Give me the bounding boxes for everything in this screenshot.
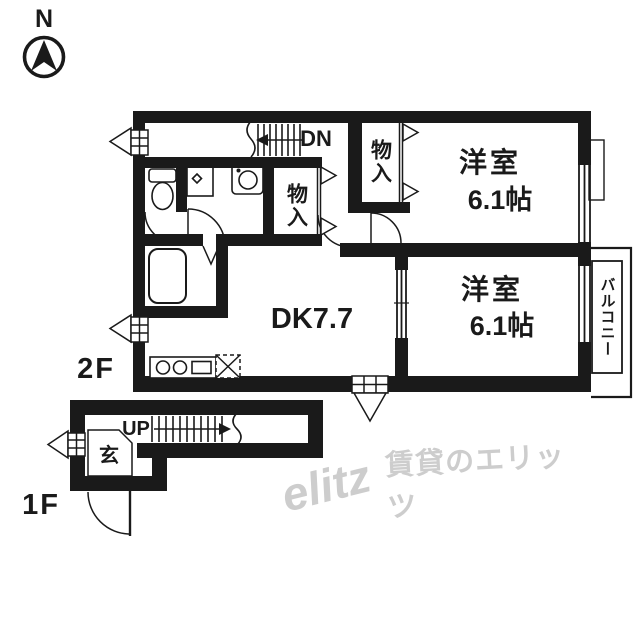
vent-icon xyxy=(352,376,388,421)
floor-plan: N DN UP 洋室 6.1帖 洋室 6.1帖 DK7.7 物入 物入 バルコニ… xyxy=(0,0,640,640)
compass-icon xyxy=(25,38,64,77)
washbasin-icon xyxy=(232,164,263,194)
stairs-up-icon xyxy=(152,413,241,445)
vent-icon xyxy=(110,128,148,155)
stairs-down-label: DN xyxy=(299,125,333,153)
entrance-label: 玄 xyxy=(98,444,120,468)
washer-pan-icon xyxy=(187,167,213,196)
bathtub-icon xyxy=(149,249,186,303)
floor-1f-label: 1F xyxy=(17,489,65,521)
stairs-down-icon xyxy=(247,121,302,157)
vent-icon xyxy=(48,431,85,458)
balcony-label: バルコニー xyxy=(596,264,618,370)
vent-icon xyxy=(110,315,148,342)
room2-size: 6.1帖 xyxy=(437,310,567,342)
toilet-icon xyxy=(149,169,176,210)
compass-north-label: N xyxy=(33,5,55,33)
closet2-label: 物入 xyxy=(367,128,393,196)
room1-size: 6.1帖 xyxy=(435,184,565,216)
room2-name: 洋室 xyxy=(432,274,552,306)
window-icon xyxy=(578,266,591,342)
window-icon xyxy=(394,270,409,338)
refrigerator-space-icon xyxy=(216,355,240,378)
window-icon xyxy=(578,140,604,242)
floor-2f-label: 2F xyxy=(72,353,120,385)
dk-label: DK7.7 xyxy=(252,302,372,336)
stairs-up-label: UP xyxy=(121,416,151,442)
room1-name: 洋室 xyxy=(430,146,550,180)
watermark-text: 賃貸のエリッツ xyxy=(385,454,582,504)
kitchen-counter-icon xyxy=(150,357,216,378)
closet1-label: 物入 xyxy=(283,172,309,240)
